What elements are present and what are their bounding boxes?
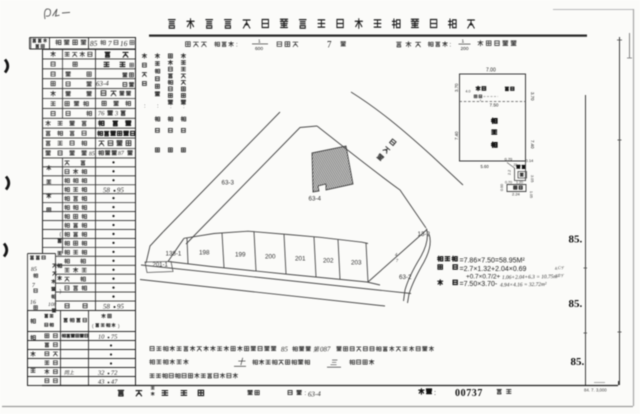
svg-text:13-2: 13-2 [418, 231, 431, 238]
svg-text:203: 203 [351, 260, 362, 267]
svg-text:95: 95 [117, 186, 125, 194]
svg-text:087: 087 [320, 345, 331, 353]
svg-text:85: 85 [90, 39, 98, 48]
svg-text:4.0: 4.0 [466, 90, 471, 94]
svg-text:00737: 00737 [455, 388, 483, 399]
svg-text:4.94×4.16 = 32.72m²: 4.94×4.16 = 32.72m² [500, 282, 547, 289]
svg-text:0.70: 0.70 [505, 156, 514, 161]
svg-text:85: 85 [281, 345, 289, 353]
svg-text:63-3: 63-3 [222, 180, 235, 187]
svg-text:十: 十 [237, 357, 246, 366]
svg-text:138-1: 138-1 [166, 251, 182, 258]
svg-text:84. 7. 3,000: 84. 7. 3,000 [584, 388, 607, 393]
svg-text:1: 1 [462, 39, 465, 45]
svg-text:16: 16 [30, 300, 36, 306]
svg-text:1.20: 1.20 [516, 181, 523, 185]
svg-text:63-4: 63-4 [96, 80, 110, 88]
svg-text:85.: 85. [569, 298, 583, 310]
svg-text::: : [434, 390, 436, 397]
svg-text:0.70: 0.70 [505, 181, 512, 185]
svg-text:3.70: 3.70 [454, 83, 459, 92]
svg-text:1.05: 1.05 [529, 191, 533, 198]
svg-text:7: 7 [108, 39, 112, 48]
svg-text:108: 108 [48, 302, 57, 308]
svg-text:+0.7×0.7/2+: +0.7×0.7/2+ [466, 274, 501, 281]
svg-text:63-2: 63-2 [399, 274, 412, 281]
svg-text:3.05: 3.05 [530, 175, 534, 182]
svg-text:199: 199 [235, 252, 246, 259]
svg-text:600: 600 [255, 46, 263, 52]
svg-text:200: 200 [461, 46, 469, 52]
svg-text:47: 47 [111, 379, 118, 386]
svg-text:7.40: 7.40 [530, 140, 535, 149]
svg-text:7.00: 7.00 [486, 68, 496, 74]
svg-text:1: 1 [258, 38, 261, 44]
svg-text:75: 75 [111, 334, 118, 341]
svg-text:76: 76 [98, 110, 105, 117]
svg-text:43: 43 [98, 379, 105, 386]
svg-text:202: 202 [323, 258, 334, 265]
svg-text:1.06+2.04+6.3 = 10.75m²: 1.06+2.04+6.3 = 10.75m² [502, 274, 559, 281]
svg-text:2.24: 2.24 [512, 192, 521, 197]
svg-text:7.40: 7.40 [454, 131, 459, 140]
svg-text:20: 20 [514, 163, 518, 167]
svg-text:85.: 85. [571, 356, 585, 368]
svg-text:0.60: 0.60 [500, 184, 504, 191]
svg-text:58: 58 [103, 302, 111, 310]
svg-text:201: 201 [295, 256, 306, 263]
svg-text:7.50: 7.50 [490, 103, 499, 108]
svg-text:63-4: 63-4 [308, 390, 322, 398]
svg-text:85: 85 [31, 267, 37, 273]
svg-text:85.: 85. [569, 234, 583, 246]
svg-text:32: 32 [97, 370, 105, 377]
svg-text:198: 198 [199, 250, 210, 257]
svg-text:16: 16 [120, 39, 128, 48]
svg-text:=2.7×1.32+2.04×0.69: =2.7×1.32+2.04×0.69 [460, 266, 527, 273]
svg-text:三: 三 [330, 359, 338, 367]
svg-text:72: 72 [111, 370, 118, 377]
svg-text:=7.86×7.50=58.95M²: =7.86×7.50=58.95M² [460, 258, 526, 265]
svg-text:63-4: 63-4 [309, 196, 322, 203]
svg-text:=7.50×3.70-: =7.50×3.70- [460, 281, 498, 288]
svg-text:2.2: 2.2 [508, 170, 512, 175]
svg-text:0.14: 0.14 [526, 158, 535, 163]
svg-text:10: 10 [98, 334, 105, 341]
svg-text:200: 200 [265, 254, 276, 261]
svg-text:5.60: 5.60 [481, 164, 490, 169]
svg-text:7: 7 [327, 40, 332, 50]
svg-text:85: 85 [89, 151, 95, 157]
svg-text:3.70: 3.70 [530, 92, 535, 101]
svg-text:58: 58 [103, 186, 111, 194]
svg-text:95: 95 [117, 302, 125, 310]
